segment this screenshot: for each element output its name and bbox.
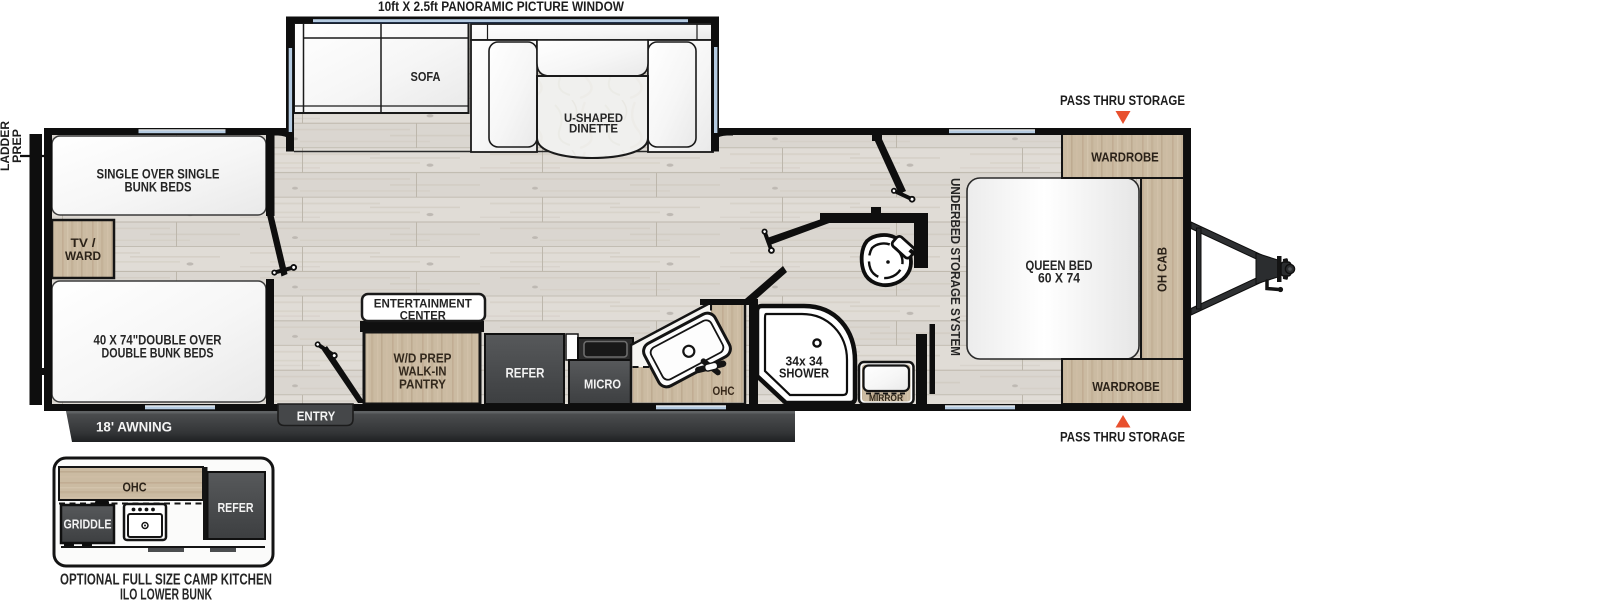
- svg-text:ENTRY: ENTRY: [297, 409, 336, 424]
- svg-text:WALK-IN: WALK-IN: [399, 365, 447, 379]
- svg-text:10ft X 2.5ft PANORAMIC PICTURE: 10ft X 2.5ft PANORAMIC PICTURE WINDOW: [378, 0, 624, 14]
- svg-text:UNDERBED STORAGE SYSTEM: UNDERBED STORAGE SYSTEM: [948, 178, 962, 356]
- svg-text:OH CAB: OH CAB: [1156, 247, 1170, 292]
- svg-text:PREP: PREP: [12, 129, 24, 163]
- svg-text:MIRROR: MIRROR: [869, 393, 903, 404]
- svg-text:W/D PREP: W/D PREP: [394, 352, 452, 366]
- svg-text:DINETTE: DINETTE: [569, 122, 618, 136]
- svg-text:PANTRY: PANTRY: [399, 378, 447, 392]
- svg-text:WARDROBE: WARDROBE: [1092, 379, 1160, 394]
- svg-text:DOUBLE BUNK BEDS: DOUBLE BUNK BEDS: [102, 346, 214, 361]
- svg-text:WARDROBE: WARDROBE: [1091, 150, 1159, 165]
- svg-text:PASS THRU STORAGE: PASS THRU STORAGE: [1060, 93, 1185, 108]
- svg-text:BUNK BEDS: BUNK BEDS: [125, 180, 192, 195]
- svg-text:PASS THRU STORAGE: PASS THRU STORAGE: [1060, 430, 1185, 445]
- svg-text:TV /: TV /: [71, 238, 97, 250]
- svg-text:REFER: REFER: [218, 500, 254, 515]
- svg-text:WARD: WARD: [65, 251, 101, 263]
- svg-text:SHOWER: SHOWER: [779, 367, 829, 381]
- svg-text:CENTER: CENTER: [400, 309, 446, 323]
- svg-text:MICRO: MICRO: [584, 377, 621, 392]
- svg-text:SOFA: SOFA: [411, 70, 441, 84]
- svg-text:OHC: OHC: [123, 480, 148, 495]
- svg-text:LADDER: LADDER: [0, 120, 12, 171]
- svg-text:ILO LOWER BUNK: ILO LOWER BUNK: [120, 587, 213, 600]
- svg-text:18' AWNING: 18' AWNING: [96, 419, 172, 435]
- svg-text:REFER: REFER: [506, 365, 545, 381]
- svg-text:OHC: OHC: [713, 384, 735, 398]
- svg-text:GRIDDLE: GRIDDLE: [64, 518, 112, 532]
- svg-text:60 X 74: 60 X 74: [1038, 270, 1080, 286]
